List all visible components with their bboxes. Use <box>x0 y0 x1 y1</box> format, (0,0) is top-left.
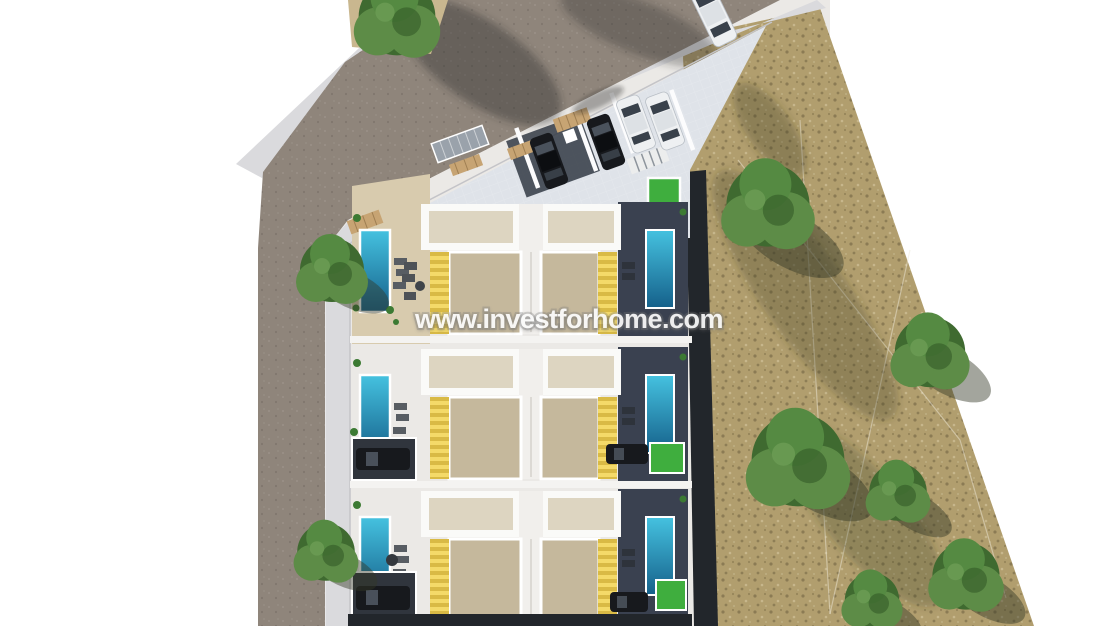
row2-car-left <box>356 448 410 470</box>
street-tree-top <box>354 0 440 58</box>
aerial-render: www.investforhome.com <box>0 0 1110 626</box>
entrance-grass-patch <box>648 178 680 206</box>
row2-car-right <box>606 444 648 464</box>
row3-car-right <box>610 592 648 612</box>
watermark-text: www.investforhome.com <box>414 304 723 334</box>
row2-grass-patch <box>650 443 684 473</box>
row3-grass-patch <box>656 580 686 610</box>
boundary-wall-bottom <box>348 614 692 626</box>
